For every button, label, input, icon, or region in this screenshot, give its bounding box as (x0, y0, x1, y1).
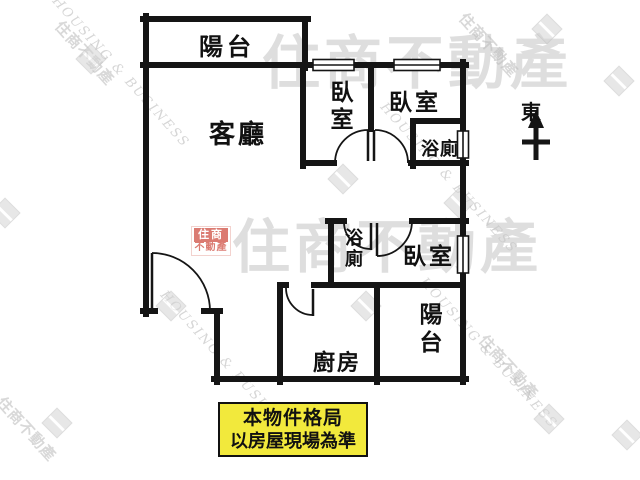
disclaimer-line2: 以房屋現場為準 (220, 430, 366, 454)
room-label-bath1: 浴廁 (421, 135, 459, 161)
room-label-bedroom2: 臥室 (389, 83, 441, 117)
floor-plan-page: 住商不動產 住商不動產 HOUSING & BUSINESS HOUSING &… (0, 0, 640, 480)
room-label-bedroom3: 臥室 (403, 237, 455, 271)
door-arc-kitchen (286, 288, 313, 315)
room-label-bath2: 浴廁 (339, 228, 365, 270)
door-arc-bedroom2 (375, 130, 408, 163)
room-label-living: 客廳 (209, 114, 267, 151)
disclaimer-line1: 本物件格局 (220, 406, 366, 430)
room-label-balcony-top: 陽台 (199, 27, 255, 62)
room-label-bedroom1: 臥室 (322, 80, 356, 134)
door-arc-entry (152, 253, 210, 311)
compass-label-east: 東 (521, 96, 541, 125)
room-label-kitchen: 廚房 (313, 345, 361, 377)
door-arc-bedroom1 (335, 130, 368, 163)
room-label-balcony-bottom: 陽台 (411, 302, 445, 358)
disclaimer-box: 本物件格局 以房屋現場為準 (218, 402, 368, 457)
